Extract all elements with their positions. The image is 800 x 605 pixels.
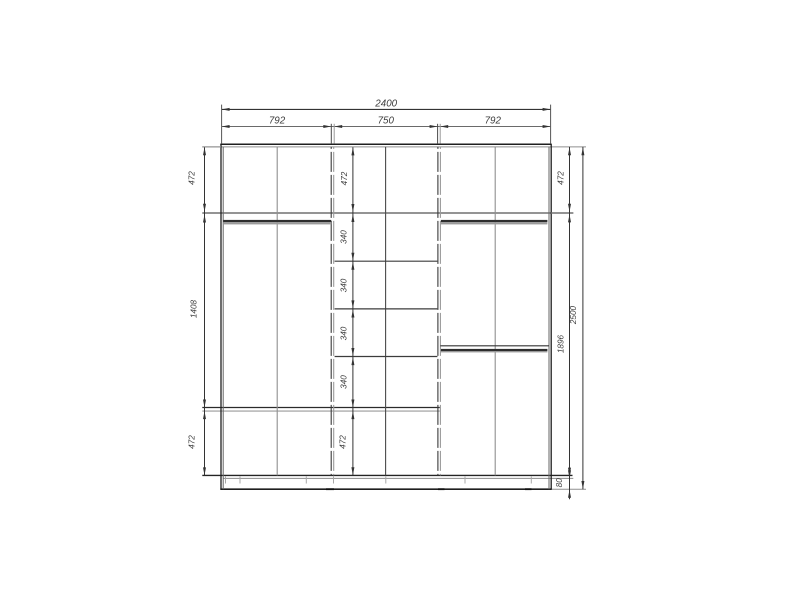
svg-text:472: 472 <box>188 171 197 185</box>
svg-text:340: 340 <box>340 230 349 244</box>
svg-text:750: 750 <box>378 116 395 127</box>
svg-text:472: 472 <box>188 435 197 449</box>
svg-text:792: 792 <box>269 116 286 127</box>
svg-text:2500: 2500 <box>569 305 578 325</box>
svg-text:472: 472 <box>340 171 349 185</box>
svg-text:80: 80 <box>555 478 564 488</box>
svg-text:792: 792 <box>485 116 502 127</box>
svg-text:340: 340 <box>340 375 349 389</box>
svg-text:472: 472 <box>339 435 348 449</box>
svg-text:2400: 2400 <box>374 99 397 110</box>
svg-text:340: 340 <box>340 278 349 292</box>
svg-text:1408: 1408 <box>190 299 199 318</box>
svg-text:340: 340 <box>340 326 349 340</box>
svg-text:472: 472 <box>556 171 565 185</box>
svg-text:1896: 1896 <box>556 334 565 353</box>
